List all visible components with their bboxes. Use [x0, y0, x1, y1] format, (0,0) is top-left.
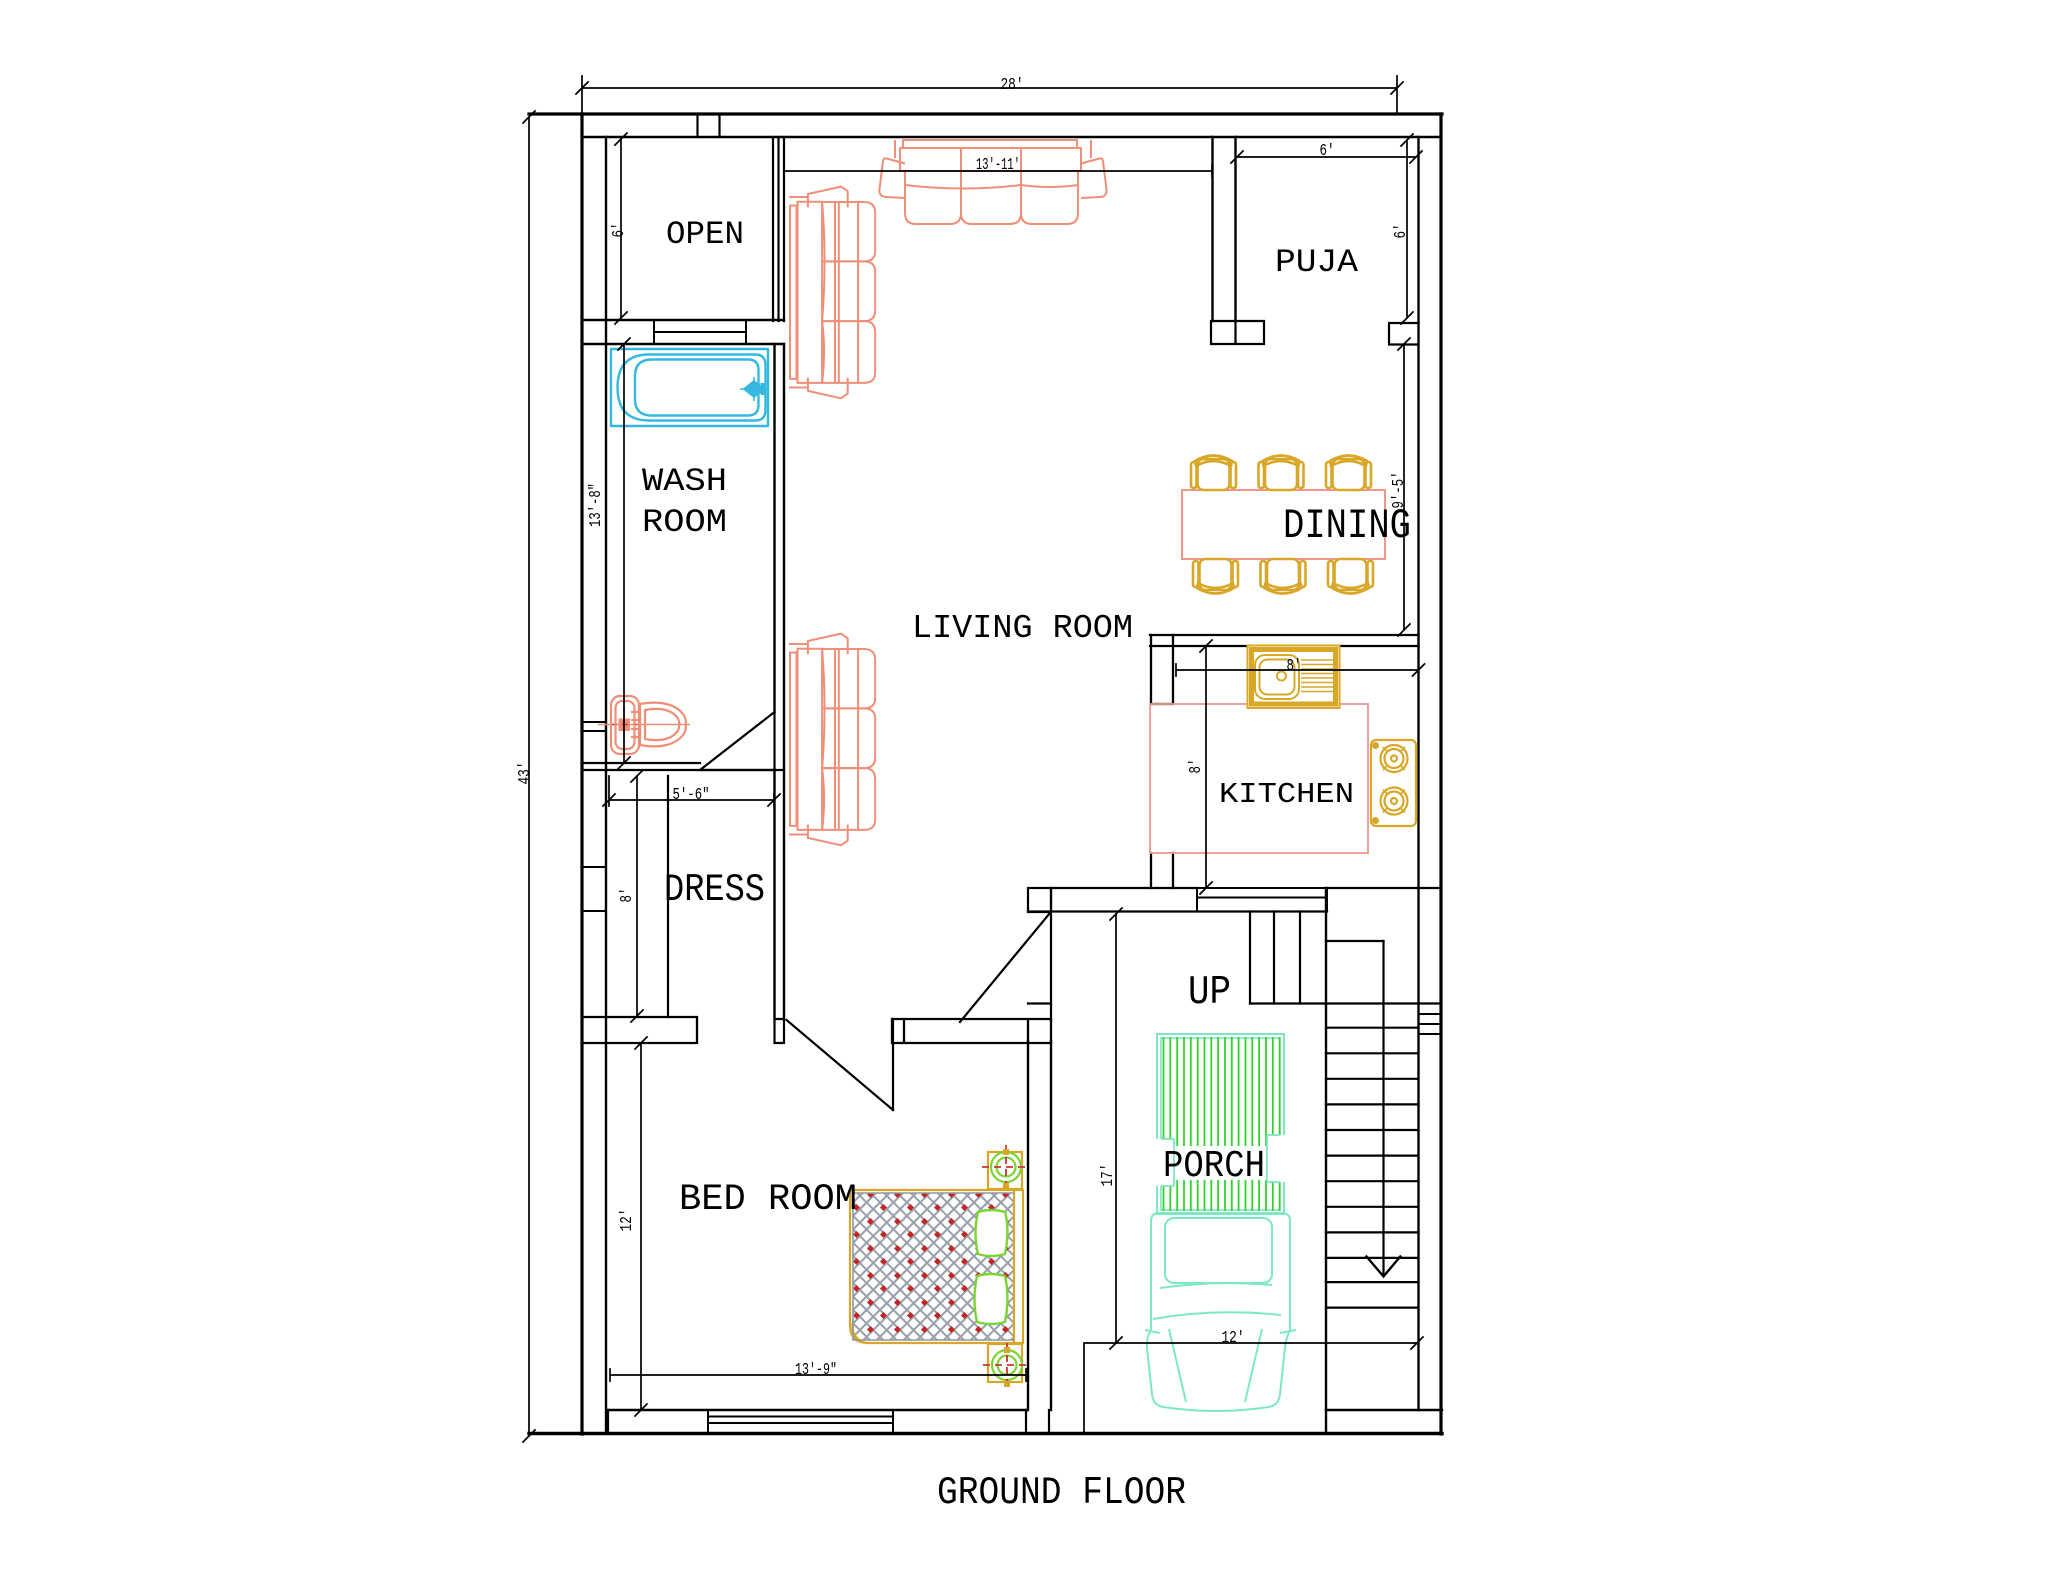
svg-text:GROUND FLOOR: GROUND FLOOR	[937, 1471, 1186, 1515]
svg-text:ROOM: ROOM	[642, 504, 727, 541]
svg-text:12': 12'	[1222, 1329, 1245, 1348]
svg-text:13'-9": 13'-9"	[795, 1361, 837, 1380]
svg-text:8': 8'	[618, 888, 637, 903]
svg-text:5'-6": 5'-6"	[673, 786, 710, 805]
svg-text:13'-8": 13'-8"	[587, 483, 606, 527]
svg-text:PUJA: PUJA	[1275, 244, 1359, 281]
svg-text:WASH: WASH	[642, 463, 727, 500]
svg-text:6': 6'	[1392, 224, 1411, 239]
svg-text:13'-11': 13'-11'	[976, 156, 1020, 175]
svg-text:UP: UP	[1188, 970, 1231, 1016]
svg-text:DINING: DINING	[1283, 502, 1411, 550]
svg-text:17': 17'	[1099, 1164, 1118, 1187]
svg-text:8': 8'	[1287, 657, 1302, 676]
svg-text:6': 6'	[1320, 142, 1335, 161]
svg-text:28': 28'	[1001, 76, 1024, 95]
svg-text:43': 43'	[516, 762, 535, 785]
svg-text:12': 12'	[618, 1209, 637, 1232]
svg-text:PORCH: PORCH	[1163, 1145, 1265, 1188]
svg-text:6': 6'	[610, 223, 629, 238]
svg-text:8': 8'	[1187, 759, 1206, 774]
svg-text:BED ROOM: BED ROOM	[679, 1179, 857, 1221]
svg-text:LIVING ROOM: LIVING ROOM	[912, 610, 1133, 647]
svg-text:KITCHEN: KITCHEN	[1219, 778, 1354, 811]
svg-text:DRESS: DRESS	[664, 868, 765, 912]
svg-text:OPEN: OPEN	[666, 216, 744, 253]
